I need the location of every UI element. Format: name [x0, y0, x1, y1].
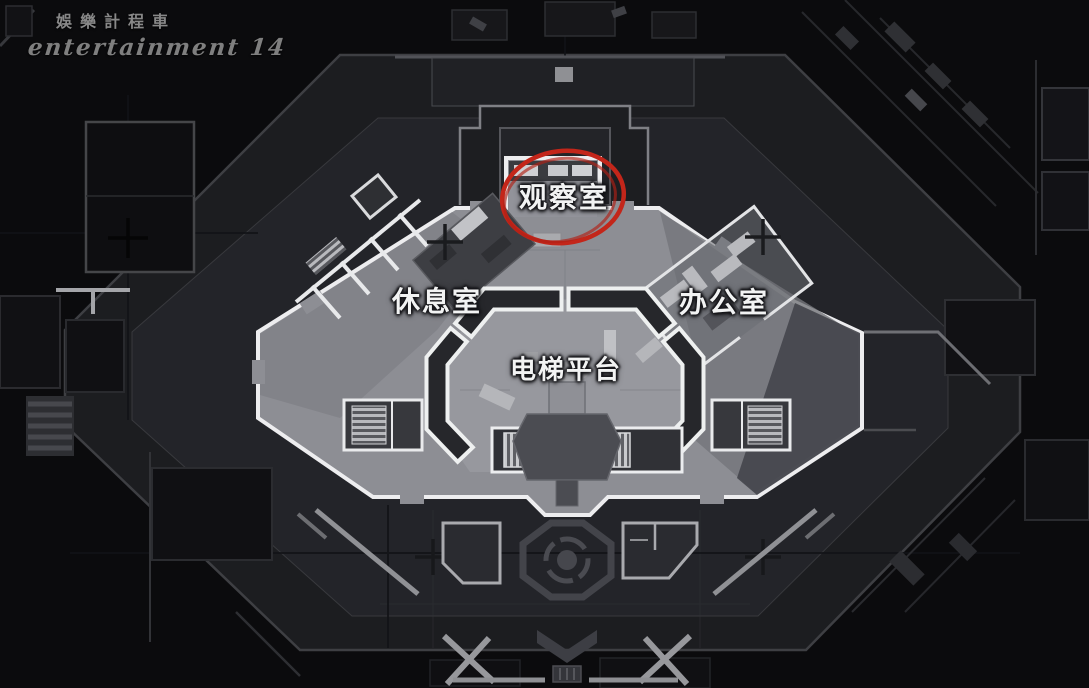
stair-room-right [712, 400, 790, 450]
room-label-lounge: 休息室 [392, 280, 482, 320]
watermark: 娛樂計程車 entertainment 14 [28, 8, 286, 61]
room-label-observation: 观察室 [519, 176, 609, 216]
game-map-screen: 观察室 休息室 办公室 电梯平台 娛樂計程車 entertainment 14 [0, 0, 1089, 688]
stair-room-left [344, 400, 422, 450]
room-label-office: 办公室 [679, 281, 769, 321]
watermark-english: entertainment 14 [27, 34, 288, 61]
tactical-map [0, 0, 1089, 688]
room-label-elevator-platform: 电梯平台 [510, 350, 622, 387]
watermark-chinese: 娛樂計程車 [28, 8, 286, 32]
